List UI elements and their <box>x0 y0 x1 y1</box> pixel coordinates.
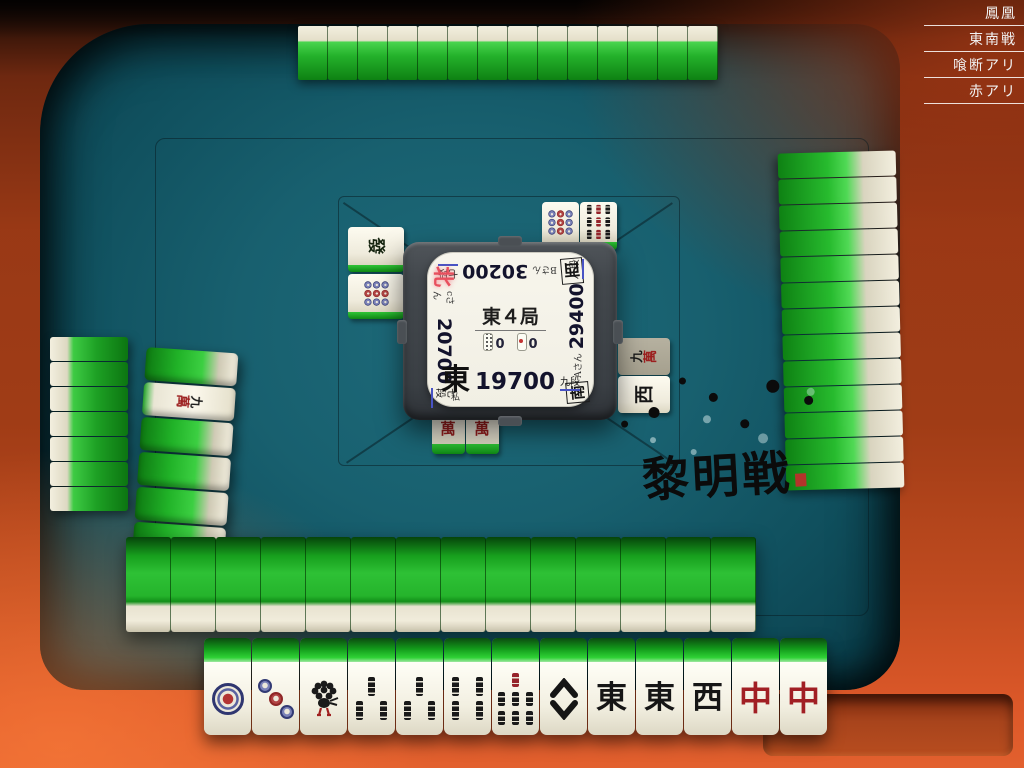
discards-left-player: 發 <box>348 227 404 321</box>
hand-tile-3p[interactable] <box>252 638 299 735</box>
wall-tile-back <box>50 412 128 436</box>
wall-tile-back <box>658 26 688 80</box>
discard-tile-9m: 九萬 <box>618 338 670 375</box>
player-hand[interactable]: 東東西中中 <box>204 638 828 735</box>
wall-tile-back <box>50 462 128 486</box>
hand-tile-C[interactable]: 中 <box>732 638 779 735</box>
hand-tile-8s[interactable] <box>540 638 587 735</box>
tile-face <box>252 662 299 735</box>
wall-tile-back <box>621 537 666 632</box>
round-indicator: 東４局 <box>427 302 594 331</box>
platform-notch <box>397 320 407 344</box>
left-wall <box>50 337 128 512</box>
wall-tile-back <box>388 26 418 80</box>
player-name-top: Bさん <box>532 265 557 278</box>
hand-tile-4s[interactable] <box>444 638 491 735</box>
wall-tile-back <box>628 26 658 80</box>
wall-tile-back <box>358 26 388 80</box>
tile-face: 西 <box>684 662 731 735</box>
tile-face <box>444 662 491 735</box>
wall-tile-back <box>50 337 128 361</box>
wall-tile-back <box>538 26 568 80</box>
wall-tile-back <box>261 537 306 632</box>
tile-back-edge <box>252 638 299 662</box>
wall-tile-back <box>508 26 538 80</box>
discard-tile-W: 西 <box>618 376 670 413</box>
wall-tile-back <box>783 358 902 386</box>
tile-face <box>348 662 395 735</box>
tile-face <box>204 662 251 735</box>
tile-back-edge <box>540 638 587 662</box>
wall-tile-back <box>135 487 229 526</box>
tile-back-edge <box>780 638 827 662</box>
platform-notch <box>498 236 522 246</box>
wall-tile-back <box>784 410 903 438</box>
hand-tile-3s[interactable] <box>348 638 395 735</box>
wall-tile-back <box>328 26 358 80</box>
tile-back-edge <box>684 638 731 662</box>
wall-tile-back <box>418 26 448 80</box>
wall-tile-back <box>50 437 128 461</box>
right-wall <box>778 151 905 492</box>
tile-back-edge <box>492 638 539 662</box>
tile-back-edge <box>396 638 443 662</box>
tile-face: 東 <box>636 662 683 735</box>
wall-tile-back <box>50 362 128 386</box>
wall-tile-back <box>478 26 508 80</box>
tile-face <box>396 662 443 735</box>
wall-tile-back <box>441 537 486 632</box>
riichi-stick-icon <box>517 333 527 351</box>
wall-tile-back <box>351 537 396 632</box>
player-rank-right: 八段 <box>570 259 584 279</box>
wall-tile-back <box>784 384 903 412</box>
wall-tile-back <box>137 452 231 491</box>
top-wall <box>298 26 718 80</box>
hand-tile-W[interactable]: 西 <box>684 638 731 735</box>
ruleset-item-2: 喰断アリ <box>924 52 1024 78</box>
wall-tile-back <box>50 387 128 411</box>
player-rank-self: 九段 <box>560 377 580 391</box>
dora-indicator-tile: 九萬 <box>142 382 236 421</box>
tile-back-edge <box>636 638 683 662</box>
honba-counter: 0 <box>483 333 504 352</box>
tile-face: 中 <box>780 662 827 735</box>
ruleset-panel: 鳳凰東南戦喰断アリ赤アリ <box>924 0 1024 104</box>
tile-face <box>540 662 587 735</box>
wall-tile-back <box>50 487 128 511</box>
player-score-top: 30200 <box>462 260 528 282</box>
wall-tile-back <box>448 26 478 80</box>
wall-tile-back <box>781 280 900 308</box>
wall-tile-back <box>778 151 897 179</box>
hand-tile-1s[interactable] <box>300 638 347 735</box>
wall-tile-back <box>126 537 171 632</box>
wall-tile-back <box>576 537 621 632</box>
wall-tile-back <box>688 26 718 80</box>
hand-tile-E[interactable]: 東 <box>588 638 635 735</box>
ruleset-item-3: 赤アリ <box>924 78 1024 104</box>
wind-indicator-self: 東 <box>441 365 470 394</box>
tile-face <box>300 662 347 735</box>
tile-face: 中 <box>732 662 779 735</box>
riichi-counter: 0 <box>517 333 538 352</box>
wall-tile-back <box>486 537 531 632</box>
wall-tile-back <box>531 537 576 632</box>
wall-tile-back <box>139 417 233 456</box>
discard-tile-9p <box>348 274 404 319</box>
discards-right-player: 九萬西 <box>618 338 670 414</box>
ruleset-item-1: 東南戦 <box>924 26 1024 52</box>
hand-tile-7s[interactable] <box>492 638 539 735</box>
tile-back-edge <box>348 638 395 662</box>
tile-face: 東 <box>588 662 635 735</box>
bottom-wall <box>126 537 756 632</box>
wall-tile-back <box>144 347 238 386</box>
player-score-self: 19700 <box>475 369 555 395</box>
hundred-stick-icon <box>483 333 493 351</box>
wall-tile-back <box>711 537 756 632</box>
wall-tile-back <box>396 537 441 632</box>
hand-tile-E[interactable]: 東 <box>636 638 683 735</box>
tile-back-edge <box>588 638 635 662</box>
hand-tile-C[interactable]: 中 <box>780 638 827 735</box>
red-seal-icon <box>795 473 807 487</box>
tile-face <box>492 662 539 735</box>
wind-indicator-left: 北 <box>429 266 459 287</box>
player-name-self: 私 <box>451 394 460 403</box>
wall-tile-back <box>779 202 898 230</box>
wall-tile-back <box>780 228 899 256</box>
tile-back-edge <box>204 638 251 662</box>
hand-tile-1p[interactable] <box>204 638 251 735</box>
player-info-self: 東 私 19700 九段 <box>427 365 594 403</box>
tile-back-edge <box>444 638 491 662</box>
wall-tile-back <box>306 537 351 632</box>
hand-tile-3s[interactable] <box>396 638 443 735</box>
tile-back-edge <box>732 638 779 662</box>
wall-tile-back <box>782 306 901 334</box>
wall-tile-back <box>780 254 899 282</box>
wall-tile-back <box>666 537 711 632</box>
center-info-panel: 西 Bさん 30200 七段 北 cさん 20700 七段 南 Aさん 2940… <box>427 252 594 407</box>
tile-back-edge <box>300 638 347 662</box>
wall-tile-back <box>598 26 628 80</box>
ruleset-item-0: 鳳凰 <box>924 0 1024 26</box>
platform-notch <box>613 320 623 344</box>
discard-tile-hatsu: 發 <box>348 227 404 272</box>
wall-tile-back <box>778 177 897 205</box>
wall-tile-back <box>782 332 901 360</box>
mahjong-table: 鳳凰東南戦喰断アリ赤アリ 九萬 發 九萬西 二萬四萬 西 Bさん 30200 七… <box>0 0 1024 768</box>
stick-counters: 0 0 <box>427 333 594 352</box>
wall-tile-back <box>568 26 598 80</box>
platform-notch <box>498 416 522 426</box>
wall-tile-back <box>171 537 216 632</box>
wall-tile-back <box>298 26 328 80</box>
wall-tile-back <box>216 537 261 632</box>
